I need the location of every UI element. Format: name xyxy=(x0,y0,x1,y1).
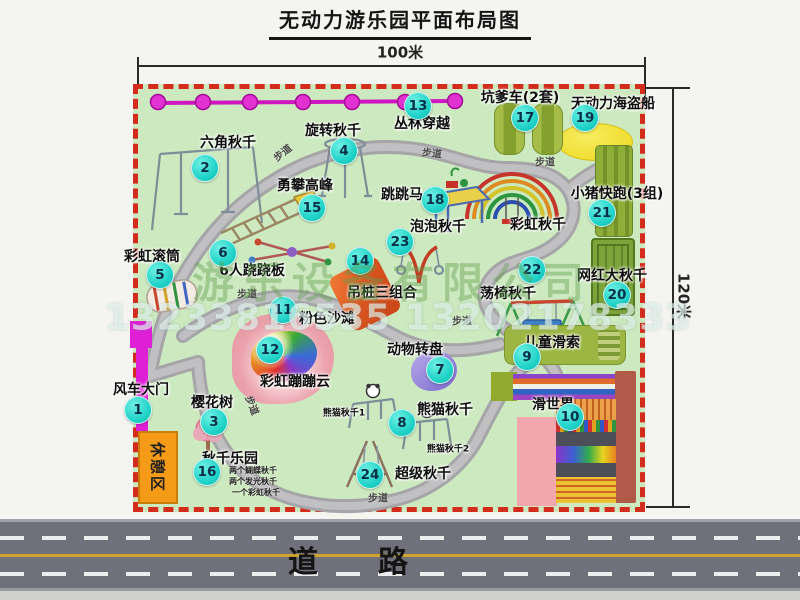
marker-hanging-chair-swing: 22 xyxy=(518,256,546,284)
label-panda-swing-2: 熊猫秋千2 xyxy=(427,442,469,455)
marker-jungle-crossing: 13 xyxy=(404,92,432,120)
slide-world-right-bar xyxy=(615,371,636,503)
marker-hexagon-swing: 2 xyxy=(191,154,219,182)
marker-hanging-post-combo: 14 xyxy=(346,247,374,275)
label-peak-climbing: 勇攀高峰 xyxy=(277,175,333,195)
marker-big-swing: 20 xyxy=(603,281,631,309)
path-label: 步道 xyxy=(535,154,555,169)
marker-cherry-tree: 3 xyxy=(200,408,228,436)
label-super-swing: 超级秋千 xyxy=(395,463,451,483)
label-panda-swing: 熊猫秋千 xyxy=(417,399,473,419)
slide-row-4 xyxy=(556,446,616,463)
marker-bubble-swing: 23 xyxy=(386,228,414,256)
park-layout-plan: 无动力游乐园平面布局图 100米 120米 xyxy=(0,0,800,600)
slide-row-5 xyxy=(556,463,616,477)
label-rainbow-swing: 彩虹秋千 xyxy=(510,214,566,234)
slide-world-pink-bar xyxy=(517,417,557,506)
swing-park-note-1: 两个蝴蝶秋千 xyxy=(229,465,277,476)
label-hexagon-swing: 六角秋千 xyxy=(200,132,256,152)
marker-six-person-seesaw: 6 xyxy=(209,239,237,267)
marker-jumping-horse: 18 xyxy=(421,186,449,214)
swing-park-note-2: 两个发光秋千 xyxy=(229,476,277,487)
path-label: 步道 xyxy=(237,286,257,301)
marker-piggy-run: 21 xyxy=(588,199,616,227)
marker-swing-park: 16 xyxy=(193,458,221,486)
marker-super-swing: 24 xyxy=(356,461,384,489)
slide-row-3 xyxy=(556,432,616,446)
marker-peak-climbing: 15 xyxy=(298,194,326,222)
slide-row-6 xyxy=(556,477,616,503)
marker-panda-swing: 8 xyxy=(388,409,416,437)
label-panda-swing-1: 熊猫秋千1 xyxy=(323,406,365,419)
label-hanging-post-combo: 吊桩三组合 xyxy=(347,282,417,302)
path-label: 步道 xyxy=(421,143,442,160)
marker-slide-world: 10 xyxy=(556,403,584,431)
path-label: 步道 xyxy=(368,490,388,505)
label-pink-beach: 粉色沙滩 xyxy=(299,308,355,328)
marker-kids-zipline: 9 xyxy=(513,343,541,371)
marker-rotating-swing: 4 xyxy=(330,137,358,165)
marker-kengdie-car: 17 xyxy=(511,104,539,132)
label-rainbow-bounce-cloud: 彩虹蹦蹦云 xyxy=(260,371,330,391)
marker-pink-beach: 11 xyxy=(269,296,297,324)
swing-park-note-3: 一个彩虹秋千 xyxy=(232,487,280,498)
kids-zipline-ladder xyxy=(598,330,620,360)
rest-area-label: 休憩区 xyxy=(148,442,169,493)
label-rotating-swing: 旋转秋千 xyxy=(305,120,361,140)
rest-area-box: 休憩区 xyxy=(138,431,178,504)
label-bubble-swing: 泡泡秋千 xyxy=(410,216,466,236)
marker-windmill-gate: 1 xyxy=(124,396,152,424)
road-label: 道 路 xyxy=(288,537,408,581)
marker-animal-carousel: 7 xyxy=(426,356,454,384)
marker-pirate-ship: 19 xyxy=(571,104,599,132)
label-jumping-horse: 跳跳马 xyxy=(381,184,423,204)
path-label: 步道 xyxy=(452,313,472,328)
marker-rainbow-bounce-cloud: 12 xyxy=(256,336,284,364)
marker-rainbow-roller: 5 xyxy=(146,261,174,289)
label-hanging-chair-swing: 荡椅秋千 xyxy=(480,283,536,303)
label-piggy-run: 小猪快跑(3组) xyxy=(571,183,664,203)
